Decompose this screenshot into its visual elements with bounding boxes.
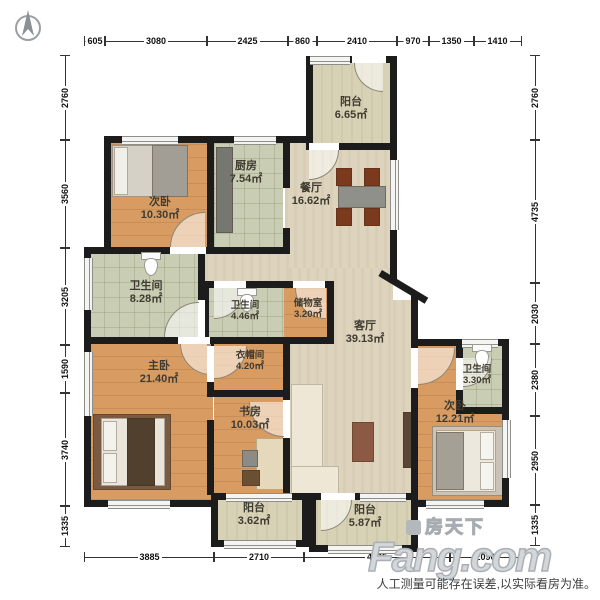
- room-label-storage: 储物室3.20㎡: [282, 298, 334, 320]
- dim-value: 2760: [530, 86, 540, 110]
- dim-right-2: 2030: [530, 282, 540, 345]
- room-label-closet: 衣帽间4.20㎡: [212, 350, 288, 372]
- room-label-balcony-bl: 阳台3.62㎡: [212, 502, 296, 528]
- disclaimer-text: 人工测量可能存在误差,以实际看房为准。: [0, 575, 596, 592]
- room-label-balcony-top: 阳台6.65㎡: [309, 96, 393, 122]
- window: [390, 160, 399, 230]
- room-area: 4.46㎡: [206, 311, 284, 322]
- dim-right-0: 2760: [530, 55, 540, 141]
- room-label-bath-2: 卫生间4.46㎡: [206, 300, 284, 322]
- room-name: 餐厅: [272, 182, 350, 195]
- dim-right-4: 2950: [530, 415, 540, 506]
- room-name: 卫生间: [206, 300, 284, 311]
- room-name: 阳台: [309, 96, 393, 109]
- room-name: 卫生间: [446, 364, 508, 375]
- dim-top-7: 1410: [473, 36, 522, 46]
- dim-top-0: 605: [84, 36, 106, 46]
- coffee-table: [352, 422, 374, 462]
- window: [234, 136, 276, 145]
- blanket: [436, 432, 464, 490]
- room-name: 阳台: [212, 502, 296, 515]
- room-name: 书房: [212, 406, 288, 419]
- door-opening: [321, 493, 355, 500]
- door-opening: [170, 247, 206, 254]
- room-area: 16.62㎡: [272, 195, 350, 208]
- window: [84, 352, 93, 416]
- door-opening: [178, 337, 210, 344]
- room-area: 39.13㎡: [318, 333, 412, 346]
- door-opening: [352, 56, 386, 63]
- dim-right-3: 2380: [530, 343, 540, 417]
- room-label-study: 书房10.03㎡: [212, 406, 288, 432]
- wall: [214, 390, 289, 397]
- window: [122, 136, 178, 145]
- dim-value: 3740: [60, 437, 70, 461]
- dim-value: 1350: [439, 36, 463, 46]
- dim-top-5: 970: [396, 36, 430, 46]
- dim-left-0: 2760: [60, 55, 70, 141]
- pillow: [103, 421, 117, 451]
- blanket: [127, 418, 155, 486]
- room-label-living: 客厅39.13㎡: [318, 320, 412, 346]
- window: [426, 500, 484, 509]
- stool: [242, 470, 260, 486]
- window: [108, 500, 170, 509]
- sofa: [291, 466, 339, 494]
- dim-value: 4735: [530, 199, 540, 223]
- blanket: [152, 145, 188, 197]
- dim-top-4: 2410: [316, 36, 398, 46]
- dim-bottom-0: 3885: [84, 552, 215, 562]
- room-name: 主卧: [112, 360, 206, 373]
- dim-value: 605: [85, 36, 104, 46]
- dim-value: 1335: [60, 514, 70, 538]
- pillow: [114, 147, 128, 195]
- dim-value: 2030: [530, 301, 540, 325]
- wall: [104, 136, 111, 254]
- dim-value: 2410: [345, 36, 369, 46]
- room-label-dining: 餐厅16.62㎡: [272, 182, 350, 208]
- room-area: 4.20㎡: [212, 361, 288, 372]
- dim-top-1: 3080: [104, 36, 208, 46]
- room-name: 阳台: [320, 504, 410, 517]
- room-label-bath-3: 卫生间3.30㎡: [446, 364, 508, 386]
- floor-hallway: [205, 249, 289, 285]
- dim-value: 860: [293, 36, 312, 46]
- wall: [302, 493, 316, 547]
- compass-icon: [10, 6, 46, 46]
- dim-value: 3080: [144, 36, 168, 46]
- room-name: 次卧: [113, 196, 207, 209]
- room-name: 衣帽间: [212, 350, 288, 361]
- dim-value: 2425: [235, 36, 259, 46]
- room-label-bath-1: 卫生间8.28㎡: [100, 280, 192, 306]
- dim-value: 1590: [60, 357, 70, 381]
- door-opening: [411, 348, 418, 388]
- pillow: [480, 462, 494, 490]
- window: [502, 420, 511, 478]
- dim-right-1: 4735: [530, 139, 540, 284]
- dim-value: 2380: [530, 368, 540, 392]
- dim-left-2: 3205: [60, 247, 70, 346]
- dim-value: 2760: [60, 86, 70, 110]
- dim-value: 1410: [485, 36, 509, 46]
- dim-bottom-1: 2710: [213, 552, 305, 562]
- room-area: 3.62㎡: [212, 515, 296, 528]
- window: [226, 493, 292, 502]
- chair: [364, 168, 380, 186]
- pillow: [103, 453, 117, 483]
- dim-top-6: 1350: [428, 36, 475, 46]
- window: [224, 540, 296, 549]
- dim-top-3: 860: [287, 36, 318, 46]
- room-label-bedroom-right: 次卧12.21㎡: [413, 400, 497, 426]
- chair: [336, 208, 352, 226]
- wall: [207, 247, 290, 254]
- pillow: [480, 432, 494, 460]
- room-label-master: 主卧21.40㎡: [112, 360, 206, 386]
- dim-left-3: 1590: [60, 344, 70, 394]
- room-name: 次卧: [413, 400, 497, 413]
- door-opening: [309, 143, 339, 150]
- chair: [364, 208, 380, 226]
- room-label-bedroom-left: 次卧10.30㎡: [113, 196, 207, 222]
- room-area: 3.30㎡: [446, 375, 508, 386]
- dim-value: 2950: [530, 448, 540, 472]
- door-opening: [293, 281, 325, 288]
- fang-watermark: 房天下 Fang.com: [368, 518, 598, 578]
- window: [84, 258, 93, 310]
- floorplan-canvas: 次卧10.30㎡ 厨房7.54㎡ 餐厅16.62㎡ 阳台6.65㎡ 卫生间8.2…: [0, 0, 600, 600]
- door-opening: [198, 300, 205, 338]
- window: [360, 493, 406, 502]
- room-name: 厨房: [206, 160, 286, 173]
- desk-chair: [242, 450, 258, 467]
- dim-left-4: 3740: [60, 392, 70, 507]
- dim-top-2: 2425: [206, 36, 289, 46]
- dim-value: 2710: [247, 552, 271, 562]
- room-name: 储物室: [282, 298, 334, 309]
- room-area: 6.65㎡: [309, 109, 393, 122]
- window: [310, 56, 350, 65]
- room-name: 卫生间: [100, 280, 192, 293]
- dim-value: 3205: [60, 284, 70, 308]
- room-name: 客厅: [318, 320, 412, 333]
- door-opening: [214, 281, 246, 288]
- dim-left-1: 3560: [60, 139, 70, 249]
- room-area: 10.30㎡: [113, 209, 207, 222]
- wall: [207, 136, 214, 254]
- dim-left-5: 1335: [60, 505, 70, 547]
- room-area: 8.28㎡: [100, 293, 192, 306]
- wall: [411, 293, 418, 503]
- dim-value: 3885: [137, 552, 161, 562]
- room-area: 3.20㎡: [282, 309, 334, 320]
- dim-value: 3560: [60, 182, 70, 206]
- room-area: 21.40㎡: [112, 373, 206, 386]
- room-area: 10.03㎡: [212, 419, 288, 432]
- dim-value: 970: [403, 36, 422, 46]
- room-area: 12.21㎡: [413, 413, 497, 426]
- watermark-en: Fang.com: [368, 536, 598, 578]
